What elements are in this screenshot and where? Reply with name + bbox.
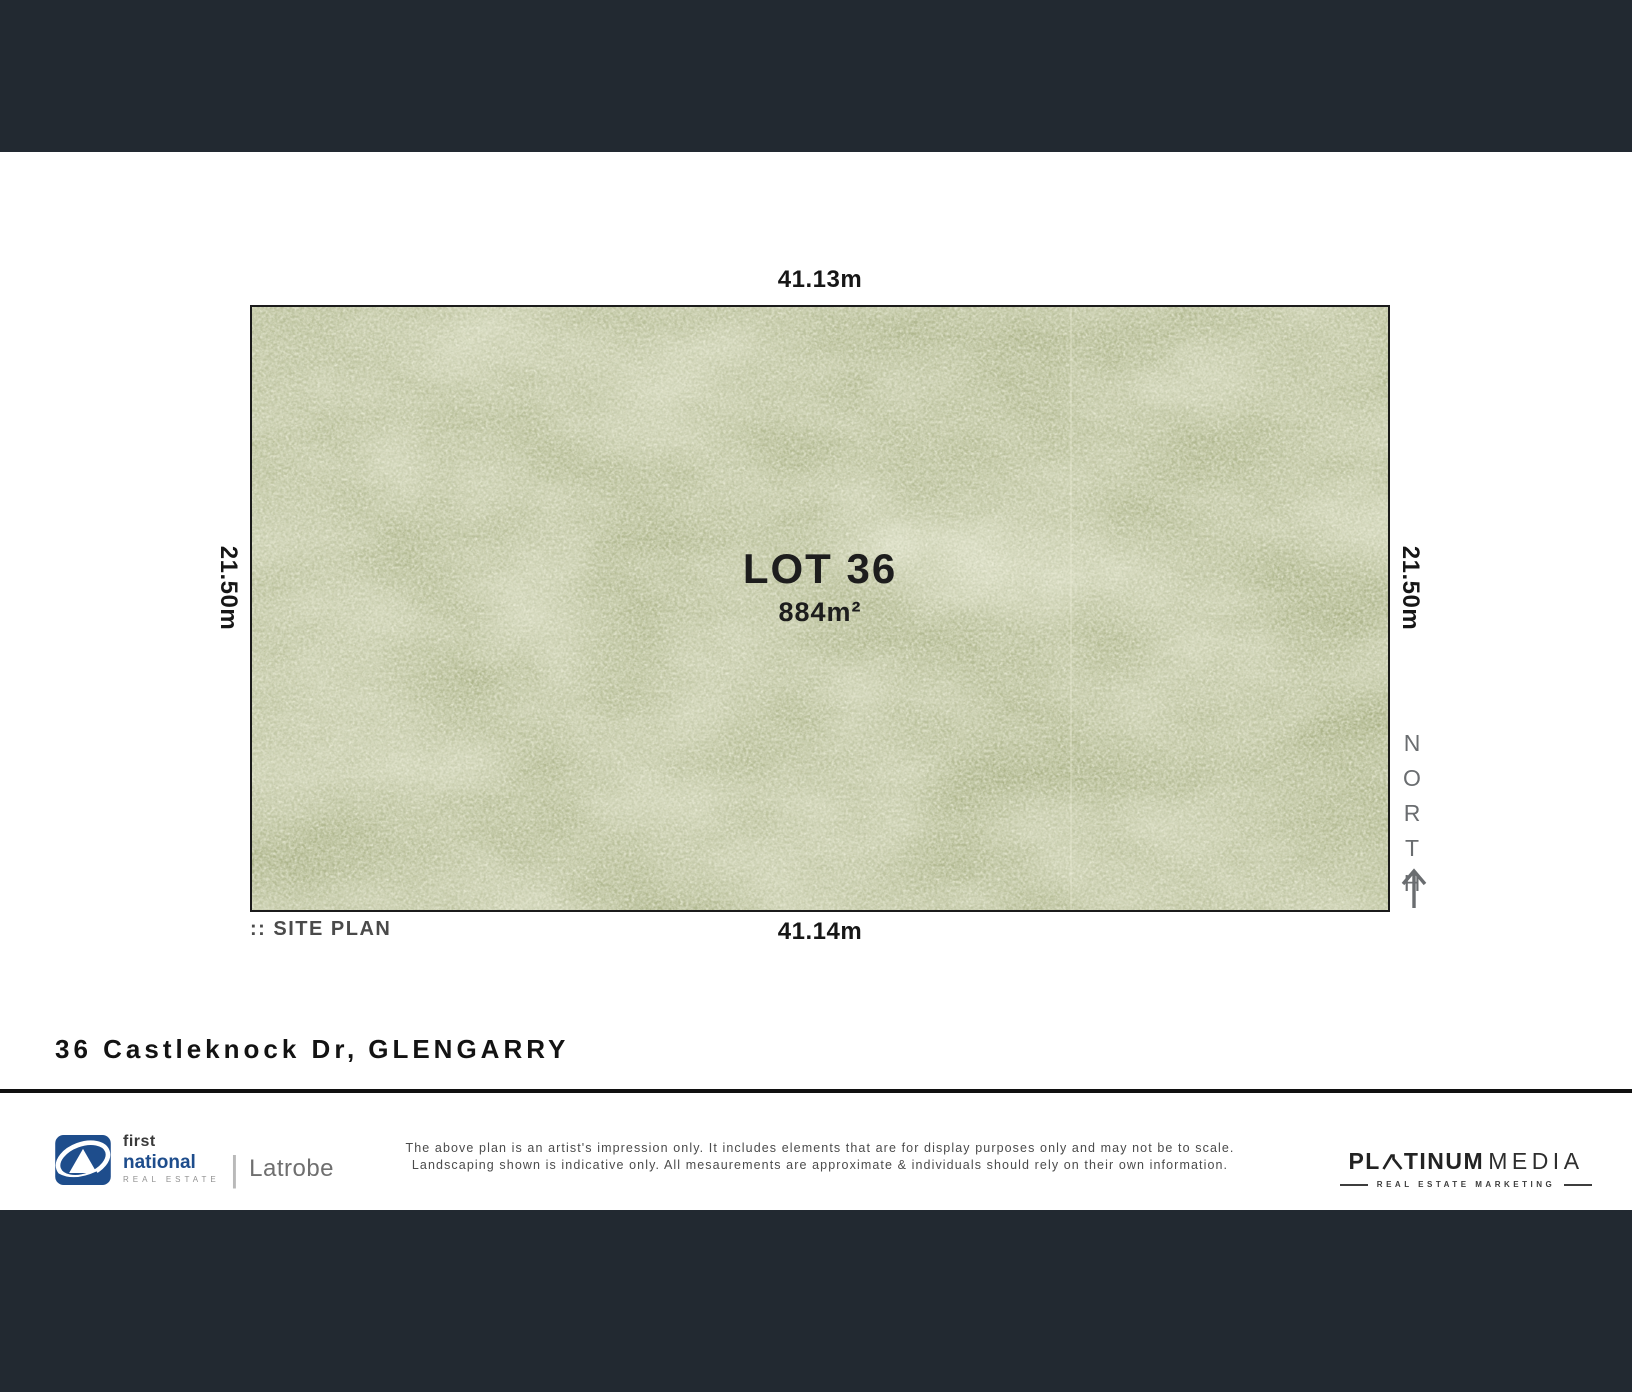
dimension-bottom: 41.14m [250, 918, 1390, 946]
divider-rule [0, 1089, 1632, 1093]
disclaimer-line-2: Landscaping shown is indicative only. Al… [366, 1157, 1274, 1174]
disclaimer-text: The above plan is an artist's impression… [366, 1140, 1274, 1174]
dimension-top: 41.13m [250, 266, 1390, 294]
first-national-logo-icon [55, 1135, 111, 1185]
pm-wordmark-tinum: TINUM [1404, 1148, 1484, 1175]
dimension-left: 21.50m [214, 546, 242, 630]
pm-tagline-rule-left [1340, 1184, 1368, 1186]
fn-wordmark-national: national [123, 1153, 220, 1172]
fn-wordmark-first: first [123, 1134, 220, 1150]
north-arrow-icon [1399, 866, 1429, 915]
roof-icon [1382, 1153, 1403, 1175]
address-street: 36 Castleknock Dr, [55, 1034, 358, 1064]
first-national-lockup: first national REAL ESTATE | Latrobe [55, 1134, 334, 1185]
disclaimer-line-1: The above plan is an artist's impression… [366, 1140, 1274, 1157]
lot-number-label: LOT 36 [743, 545, 897, 593]
fn-wordmark-realestate: REAL ESTATE [123, 1176, 220, 1184]
lot-parcel: LOT 36 884m² [250, 305, 1390, 912]
platinum-media-lockup: PL TINUM MEDIA REAL ESTATE MARKETING [1340, 1148, 1592, 1189]
fn-office-name: Latrobe [249, 1155, 334, 1185]
lot-area-label: 884m² [778, 597, 861, 628]
property-address: 36 Castleknock Dr,GLENGARRY [55, 1034, 569, 1065]
site-plan-caption: :: SITE PLAN [250, 918, 391, 941]
fn-divider: | [230, 1153, 239, 1185]
bottom-banner-bar: J L PROPERTY [0, 1210, 1632, 1392]
address-locality: GLENGARRY [368, 1034, 569, 1064]
top-banner-bar [0, 0, 1632, 152]
dimension-right: 21.50m [1396, 546, 1424, 630]
pm-wordmark-pl: PL [1348, 1148, 1380, 1175]
pm-wordmark-media: MEDIA [1488, 1148, 1583, 1175]
pm-tagline: REAL ESTATE MARKETING [1377, 1180, 1555, 1189]
pm-tagline-rule-right [1564, 1184, 1592, 1186]
